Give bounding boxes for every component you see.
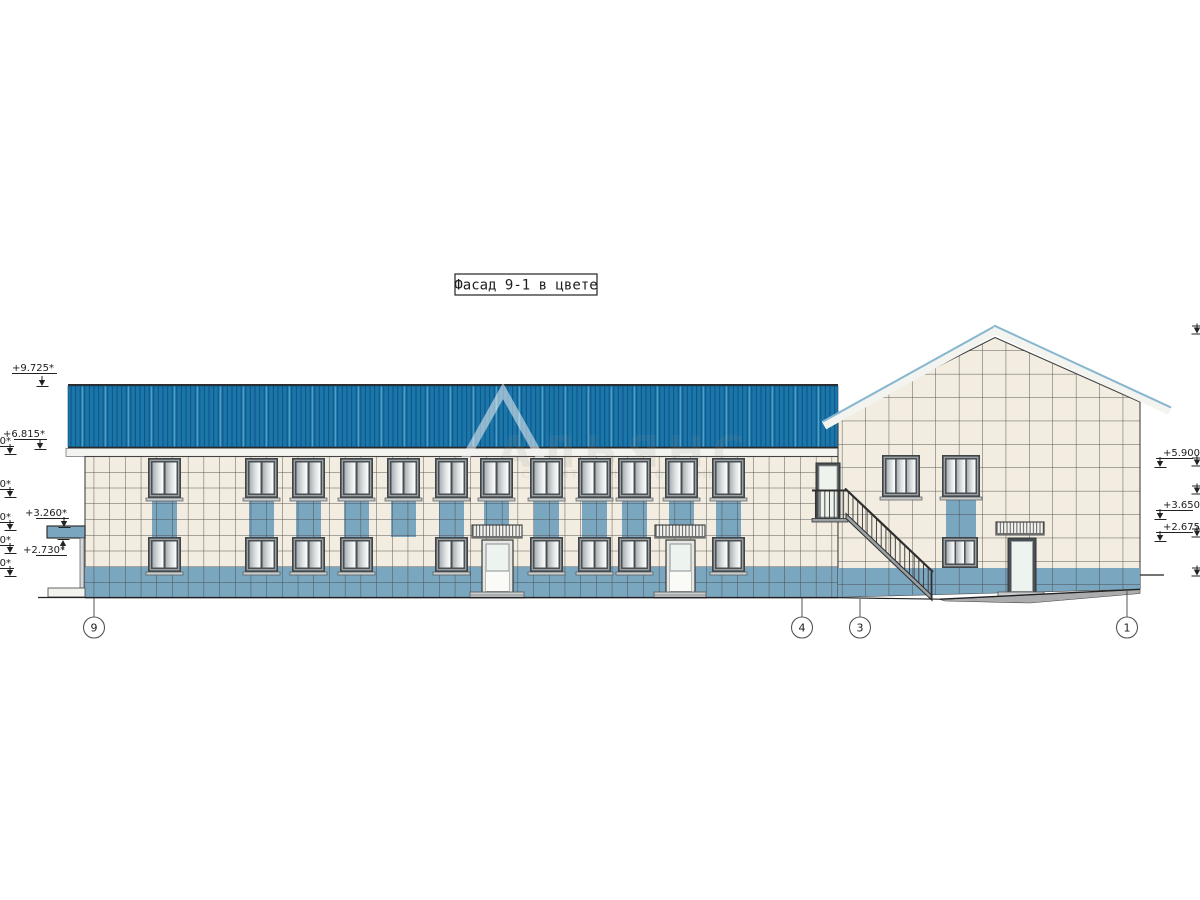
elevation-label: +9.725* <box>12 363 54 374</box>
landing-railing <box>813 492 846 519</box>
upper-window <box>243 458 280 501</box>
elevation-label: +5.900* <box>1163 448 1200 459</box>
axis-number: 1 <box>1124 622 1131 635</box>
elevation-marker-clipped: 10* <box>0 512 17 531</box>
upper-window <box>528 458 565 501</box>
axis-marker-9: 9 <box>84 598 105 638</box>
elevation-markers-left-clipped: 40* 40* 10* 50* 40* <box>0 436 17 577</box>
elevation-label: 40* <box>0 479 11 490</box>
gable-block <box>823 326 1171 598</box>
gable-upper-window <box>880 455 922 500</box>
drawing-title: Фасад 9-1 в цвете <box>454 278 597 294</box>
axis-number: 3 <box>857 622 864 635</box>
upper-window <box>338 458 375 501</box>
canopy-edge <box>996 533 1044 535</box>
lower-window <box>290 537 327 575</box>
lower-window <box>243 537 280 575</box>
elevation-label: 40* <box>0 436 11 447</box>
upper-window <box>433 458 470 501</box>
door-panel <box>670 572 691 592</box>
upper-window <box>710 458 747 501</box>
upper-window <box>290 458 327 501</box>
gable-upper-window <box>940 455 982 500</box>
elevation-marker-clipped: 50* <box>0 535 17 554</box>
upper-window <box>663 458 700 501</box>
elevation-marker-clipped: 40* <box>0 479 17 498</box>
elevation-marker: +9.725* <box>12 363 57 387</box>
elevation-marker: +3.260* <box>25 508 71 528</box>
lower-window <box>528 537 565 575</box>
lower-window <box>616 537 653 575</box>
canopy-edge <box>472 536 522 538</box>
lower-window <box>433 537 470 575</box>
elevation-label: 40* <box>0 558 11 569</box>
door-leaf <box>1012 542 1033 592</box>
elevation-marker-clipped: 40* <box>0 558 17 577</box>
upper-window <box>478 458 515 501</box>
left-side-elements <box>47 526 85 597</box>
elevation-markers-right: +5.900* +3.650* +2.675* <box>1155 448 1200 542</box>
landing-platform <box>812 519 848 523</box>
facade-elevation-drawing: Фасад 9-1 в цвете <box>0 0 1200 900</box>
gable-lower-window <box>942 537 978 568</box>
elevation-label: +3.650* <box>1163 500 1200 511</box>
upper-window <box>576 458 613 501</box>
elevation-label: +2.730* <box>23 545 65 556</box>
facade-drawing-page: Фасад 9-1 в цвете <box>0 0 1200 900</box>
downpipe <box>80 538 84 588</box>
door-panel <box>486 572 509 592</box>
upper-window <box>616 458 653 501</box>
elevation-marker: +3.650* <box>1155 500 1200 520</box>
elevation-marker: +2.730* <box>23 540 70 557</box>
elevation-marker: +2.675* <box>1155 522 1200 542</box>
elevation-label: +3.260* <box>25 508 67 519</box>
axis-number: 4 <box>799 622 806 635</box>
axis-marker-1: 1 <box>1117 590 1138 638</box>
axis-marker-4: 4 <box>792 598 813 638</box>
lower-window <box>576 537 613 575</box>
lower-window <box>710 537 747 575</box>
elevation-markers-left: +9.725* +6.815* +3.260* +2.730* <box>3 363 71 556</box>
title-box: Фасад 9-1 в цвете <box>454 274 597 295</box>
lower-window <box>338 537 375 575</box>
upper-window <box>385 458 422 501</box>
axis-marker-3: 3 <box>850 599 871 638</box>
elevation-label: 50* <box>0 535 11 546</box>
elevation-label: 10* <box>0 512 11 523</box>
lower-window <box>146 537 183 575</box>
axis-number: 9 <box>91 622 98 635</box>
upper-window <box>146 458 183 501</box>
side-step <box>48 588 85 597</box>
canopy-edge <box>655 536 705 538</box>
